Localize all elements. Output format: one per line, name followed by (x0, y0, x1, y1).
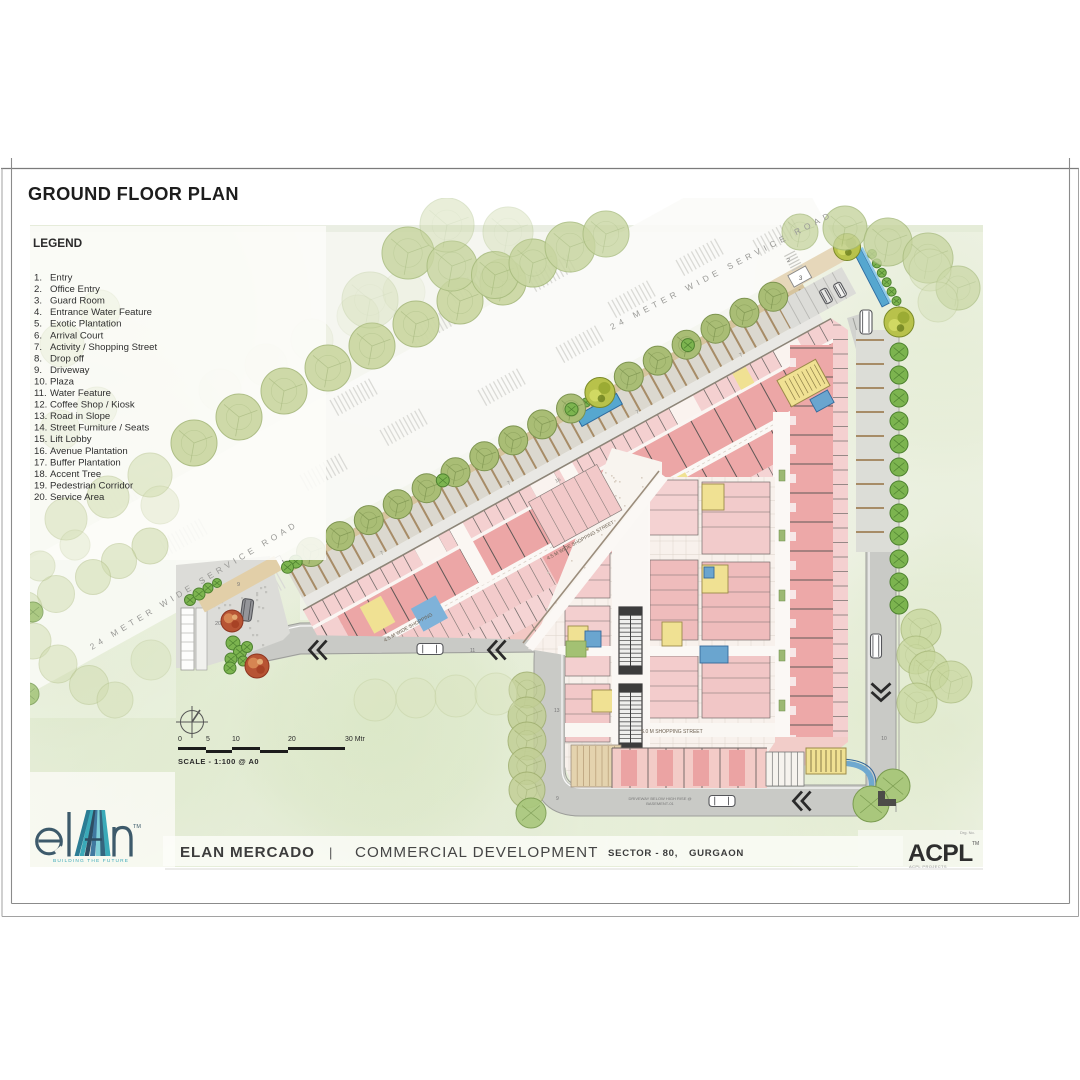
svg-text:20: 20 (288, 736, 296, 743)
svg-text:ACPL: ACPL (908, 840, 973, 867)
svg-text:10: 10 (232, 736, 240, 743)
svg-text:Exotic Plantation: Exotic Plantation (50, 319, 121, 330)
svg-text:TM: TM (972, 841, 979, 847)
svg-text:12.: 12. (34, 400, 47, 411)
svg-text:18.: 18. (34, 469, 47, 480)
svg-text:10: 10 (881, 736, 887, 742)
svg-text:20: 20 (215, 621, 221, 627)
svg-text:5.: 5. (34, 319, 42, 330)
svg-text:Drg. No.: Drg. No. (960, 830, 975, 835)
svg-text:SECTOR - 80,: SECTOR - 80, (608, 848, 678, 859)
svg-text:Driveway: Driveway (50, 365, 90, 376)
svg-text:LEGEND: LEGEND (33, 236, 83, 250)
svg-text:6.0 M SHOPPING STREET: 6.0 M SHOPPING STREET (641, 729, 702, 735)
svg-text:9.: 9. (34, 365, 42, 376)
svg-text:Service Area: Service Area (50, 492, 105, 503)
svg-text:Entrance Water Feature: Entrance Water Feature (50, 307, 152, 318)
svg-text:GROUND FLOOR PLAN: GROUND FLOOR PLAN (28, 184, 239, 204)
svg-text:GURGAON: GURGAON (689, 848, 744, 859)
svg-text:Water Feature: Water Feature (50, 388, 111, 399)
svg-text:Entry: Entry (50, 273, 73, 284)
svg-text:Road in Slope: Road in Slope (50, 411, 110, 422)
svg-text:ELAN MERCADO: ELAN MERCADO (180, 844, 315, 861)
svg-text:13.: 13. (34, 411, 47, 422)
svg-text:8.: 8. (34, 353, 42, 364)
svg-text:11.: 11. (34, 388, 47, 399)
svg-text:15.: 15. (34, 434, 47, 445)
svg-text:14.: 14. (34, 423, 47, 434)
svg-text:Buffer Plantation: Buffer Plantation (50, 457, 121, 468)
svg-text:SCALE - 1:100 @ A0: SCALE - 1:100 @ A0 (178, 757, 259, 766)
svg-text:Avenue Plantation: Avenue Plantation (50, 446, 128, 457)
svg-text:19.: 19. (34, 480, 47, 491)
svg-text:5: 5 (206, 736, 210, 743)
svg-text:Coffee Shop / Kiosk: Coffee Shop / Kiosk (50, 400, 135, 411)
svg-text:Pedestrian Corridor: Pedestrian Corridor (50, 480, 134, 491)
svg-text:Arrival Court: Arrival Court (50, 330, 104, 341)
svg-text:1.: 1. (34, 273, 42, 284)
svg-text:Street Furniture / Seats: Street Furniture / Seats (50, 423, 149, 434)
svg-text:7.: 7. (34, 342, 42, 353)
svg-text:Activity / Shopping Street: Activity / Shopping Street (50, 342, 158, 353)
svg-text:ACPL PROJECTS: ACPL PROJECTS (909, 864, 947, 869)
svg-text:Plaza: Plaza (50, 376, 75, 387)
svg-text:10.: 10. (34, 376, 47, 387)
svg-text:20.: 20. (34, 492, 47, 503)
svg-text:2.: 2. (34, 284, 42, 295)
svg-text:16.: 16. (34, 446, 47, 457)
svg-text:30 Mtr: 30 Mtr (345, 736, 366, 743)
svg-text:4.: 4. (34, 307, 42, 318)
svg-text:3.: 3. (34, 296, 42, 307)
svg-text:2: 2 (787, 258, 790, 264)
svg-text:BASEMENT-01: BASEMENT-01 (646, 801, 674, 806)
svg-text:11: 11 (470, 648, 475, 654)
svg-text:Guard Room: Guard Room (50, 296, 105, 307)
svg-text:9: 9 (556, 796, 559, 802)
svg-text:6.: 6. (34, 330, 42, 341)
svg-text:Accent Tree: Accent Tree (50, 469, 101, 480)
svg-text:BUILDING THE FUTURE: BUILDING THE FUTURE (53, 858, 129, 864)
svg-text:TM: TM (133, 824, 141, 830)
svg-text:Office Entry: Office Entry (50, 284, 100, 295)
svg-text:Lift Lobby: Lift Lobby (50, 434, 92, 445)
svg-text:13: 13 (554, 708, 560, 714)
svg-text:0: 0 (178, 736, 182, 743)
svg-text:Drop off: Drop off (50, 353, 84, 364)
svg-text:9: 9 (237, 582, 240, 588)
svg-text:|: | (329, 845, 332, 860)
svg-text:17.: 17. (34, 457, 47, 468)
svg-text:COMMERCIAL DEVELOPMENT: COMMERCIAL DEVELOPMENT (355, 844, 598, 861)
